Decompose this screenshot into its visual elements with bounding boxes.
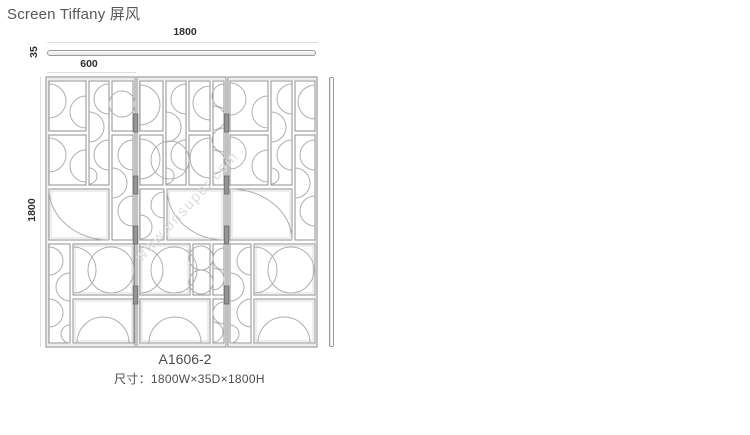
screen-panel-3 [228, 77, 317, 347]
product-size-text: 尺寸：1800W×35D×1800H [114, 370, 265, 387]
side-view-bar [329, 77, 334, 347]
dim-depth-label: 35 [27, 43, 41, 61]
dim-overall-height-label: 1800 [25, 191, 39, 229]
dim-panel-width-line [47, 72, 136, 73]
dim-panel-width-label: 600 [69, 58, 109, 70]
product-code: A1606-2 [140, 351, 230, 367]
screen-panel-1 [46, 77, 135, 347]
dim-overall-height-line [40, 77, 41, 347]
dim-overall-width-line [47, 42, 318, 43]
dim-overall-width-label: 1800 [160, 26, 210, 38]
page-title: Screen Tiffany 屏风 [7, 3, 140, 24]
top-view-bar [47, 50, 316, 56]
